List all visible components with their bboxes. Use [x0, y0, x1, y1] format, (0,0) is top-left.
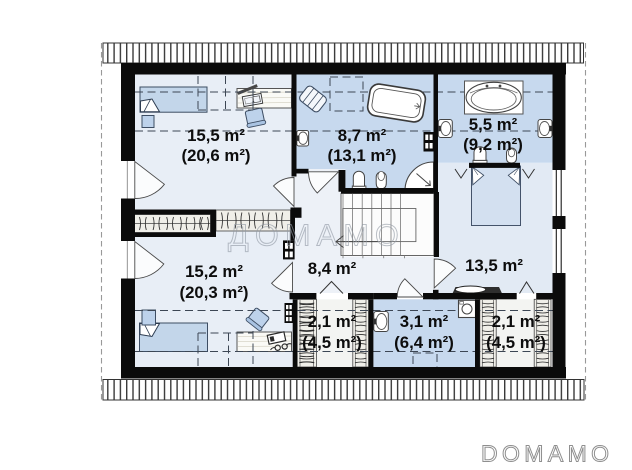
svg-text:DOMAMO: DOMAMO: [481, 441, 613, 467]
svg-text:(20,3 m²): (20,3 m²): [179, 283, 248, 302]
svg-text:(13,1 m²): (13,1 m²): [327, 146, 396, 165]
svg-text:(9,2 m²): (9,2 m²): [463, 135, 523, 154]
svg-text:15,5 m²: 15,5 m²: [187, 126, 245, 145]
svg-text:8,7 m²: 8,7 m²: [338, 126, 387, 145]
svg-text:(4,5 m²): (4,5 m²): [486, 333, 546, 352]
svg-text:13,5 m²: 13,5 m²: [465, 256, 523, 275]
svg-text:(6,4 m²): (6,4 m²): [394, 333, 454, 352]
svg-text:2,1 m²: 2,1 m²: [308, 312, 357, 331]
svg-text:8,4 m²: 8,4 m²: [308, 259, 357, 278]
svg-text:5,5 m²: 5,5 m²: [469, 115, 518, 134]
svg-text:(4,5 m²): (4,5 m²): [302, 333, 362, 352]
svg-text:3,1 m²: 3,1 m²: [400, 312, 449, 331]
svg-text:ДОМАМО: ДОМАМО: [228, 219, 405, 253]
svg-text:15,2 m²: 15,2 m²: [185, 262, 243, 281]
svg-text:2,1 m²: 2,1 m²: [492, 312, 541, 331]
svg-text:(20,6 m²): (20,6 m²): [181, 146, 250, 165]
